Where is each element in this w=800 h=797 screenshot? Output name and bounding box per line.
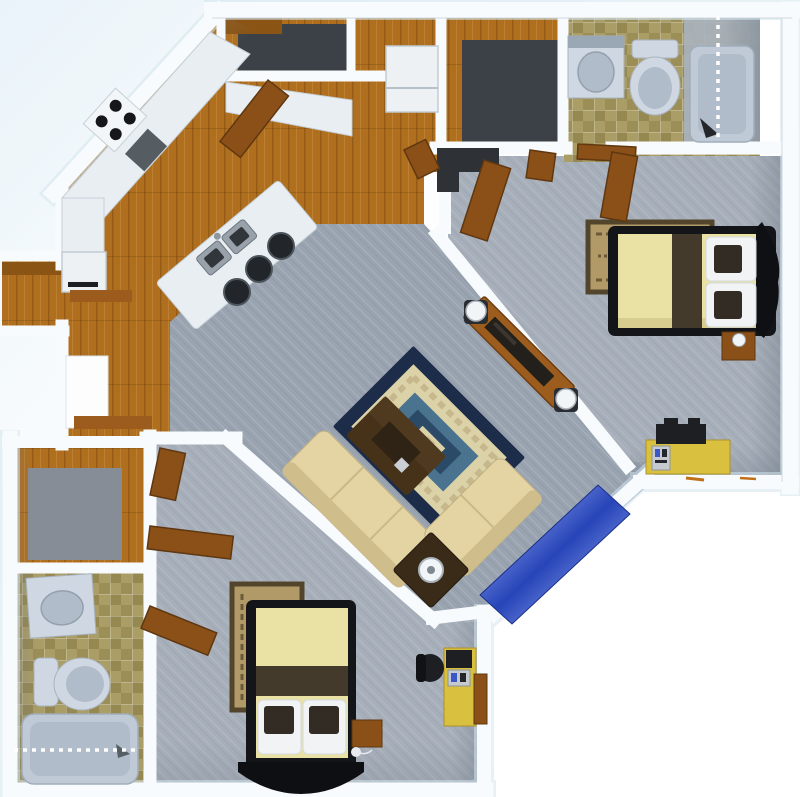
bed-runner [672, 234, 702, 328]
linen-closet-shelf [2, 262, 62, 275]
open-door-hall-small [526, 150, 556, 181]
nightstand-lamp [733, 334, 746, 347]
counter-left-cabinet [62, 198, 104, 252]
table-lamp-left [464, 300, 488, 324]
bar-stool [268, 233, 294, 259]
bed-2 [238, 600, 364, 794]
toilet-1 [630, 40, 680, 115]
wall-shelf-upper [70, 290, 132, 302]
washer-slot [68, 282, 98, 287]
bathtub-1 [690, 46, 754, 142]
refrigerator [386, 46, 438, 112]
bar-stool [224, 279, 250, 305]
pencil [686, 478, 704, 480]
computer-dark [446, 650, 472, 668]
computer-tower [652, 446, 670, 470]
table-lamp-right [554, 388, 578, 412]
bed-runner-2 [256, 666, 348, 696]
vanity-sink-1 [568, 36, 624, 98]
vanity-sink-2 [26, 574, 96, 638]
wall-shelf-lower [74, 416, 152, 429]
toilet-2 [34, 658, 110, 710]
bar-stool [246, 256, 272, 282]
floor-plan-image [0, 0, 800, 797]
walkin-closet-inner [28, 468, 122, 560]
bed-master [608, 222, 779, 338]
pencil [740, 478, 756, 479]
open-door-bedroom2-right-wall [474, 674, 487, 724]
office-chair [416, 654, 444, 682]
utility-closet-shadow [462, 40, 562, 144]
desk-2 [444, 648, 476, 726]
nightstand-master [722, 332, 755, 360]
